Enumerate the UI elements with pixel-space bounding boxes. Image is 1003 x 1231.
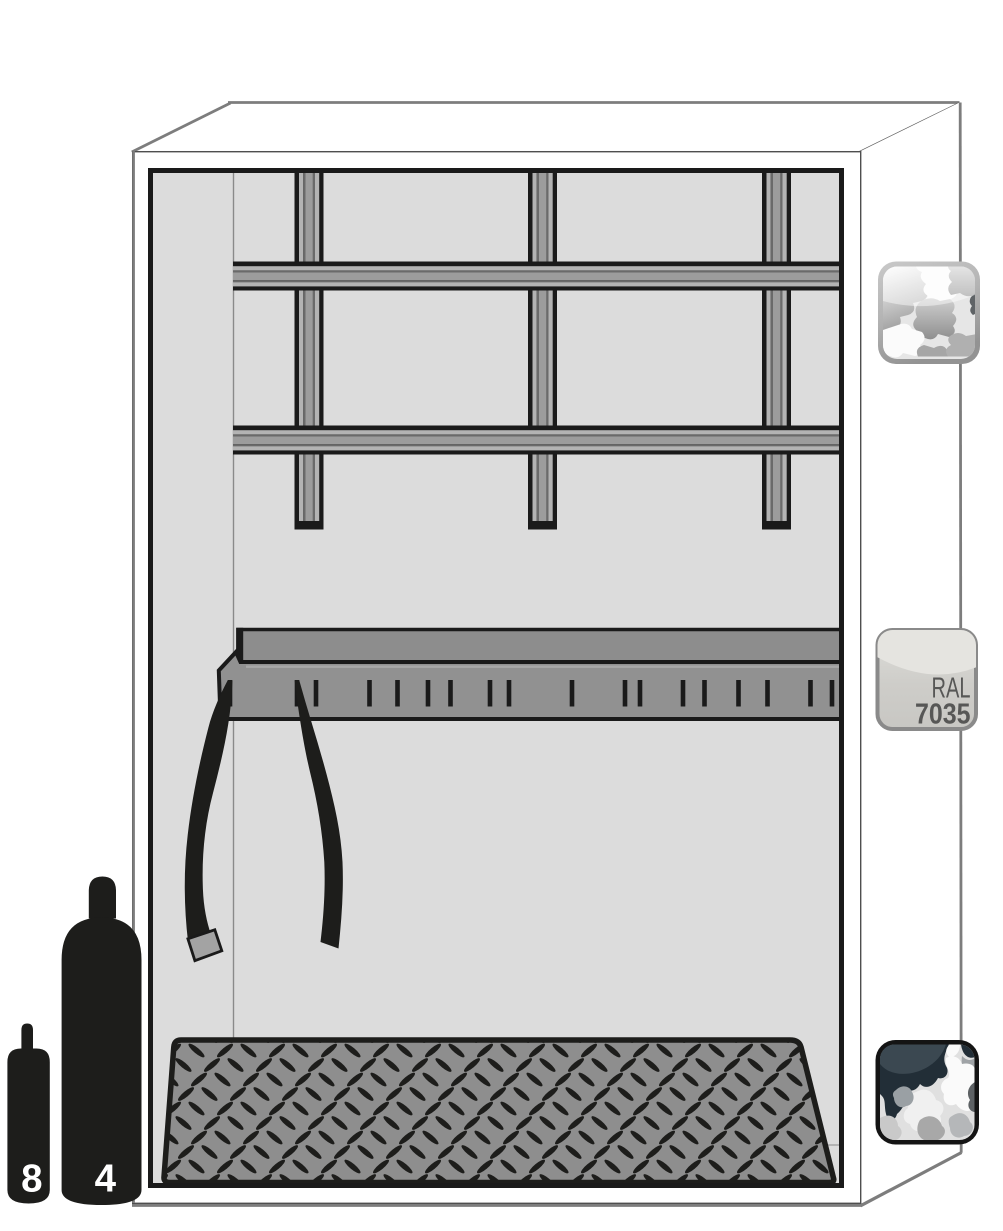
svg-text:7035: 7035 [915, 699, 971, 731]
svg-text:4: 4 [95, 1158, 117, 1201]
svg-text:8: 8 [21, 1158, 42, 1201]
